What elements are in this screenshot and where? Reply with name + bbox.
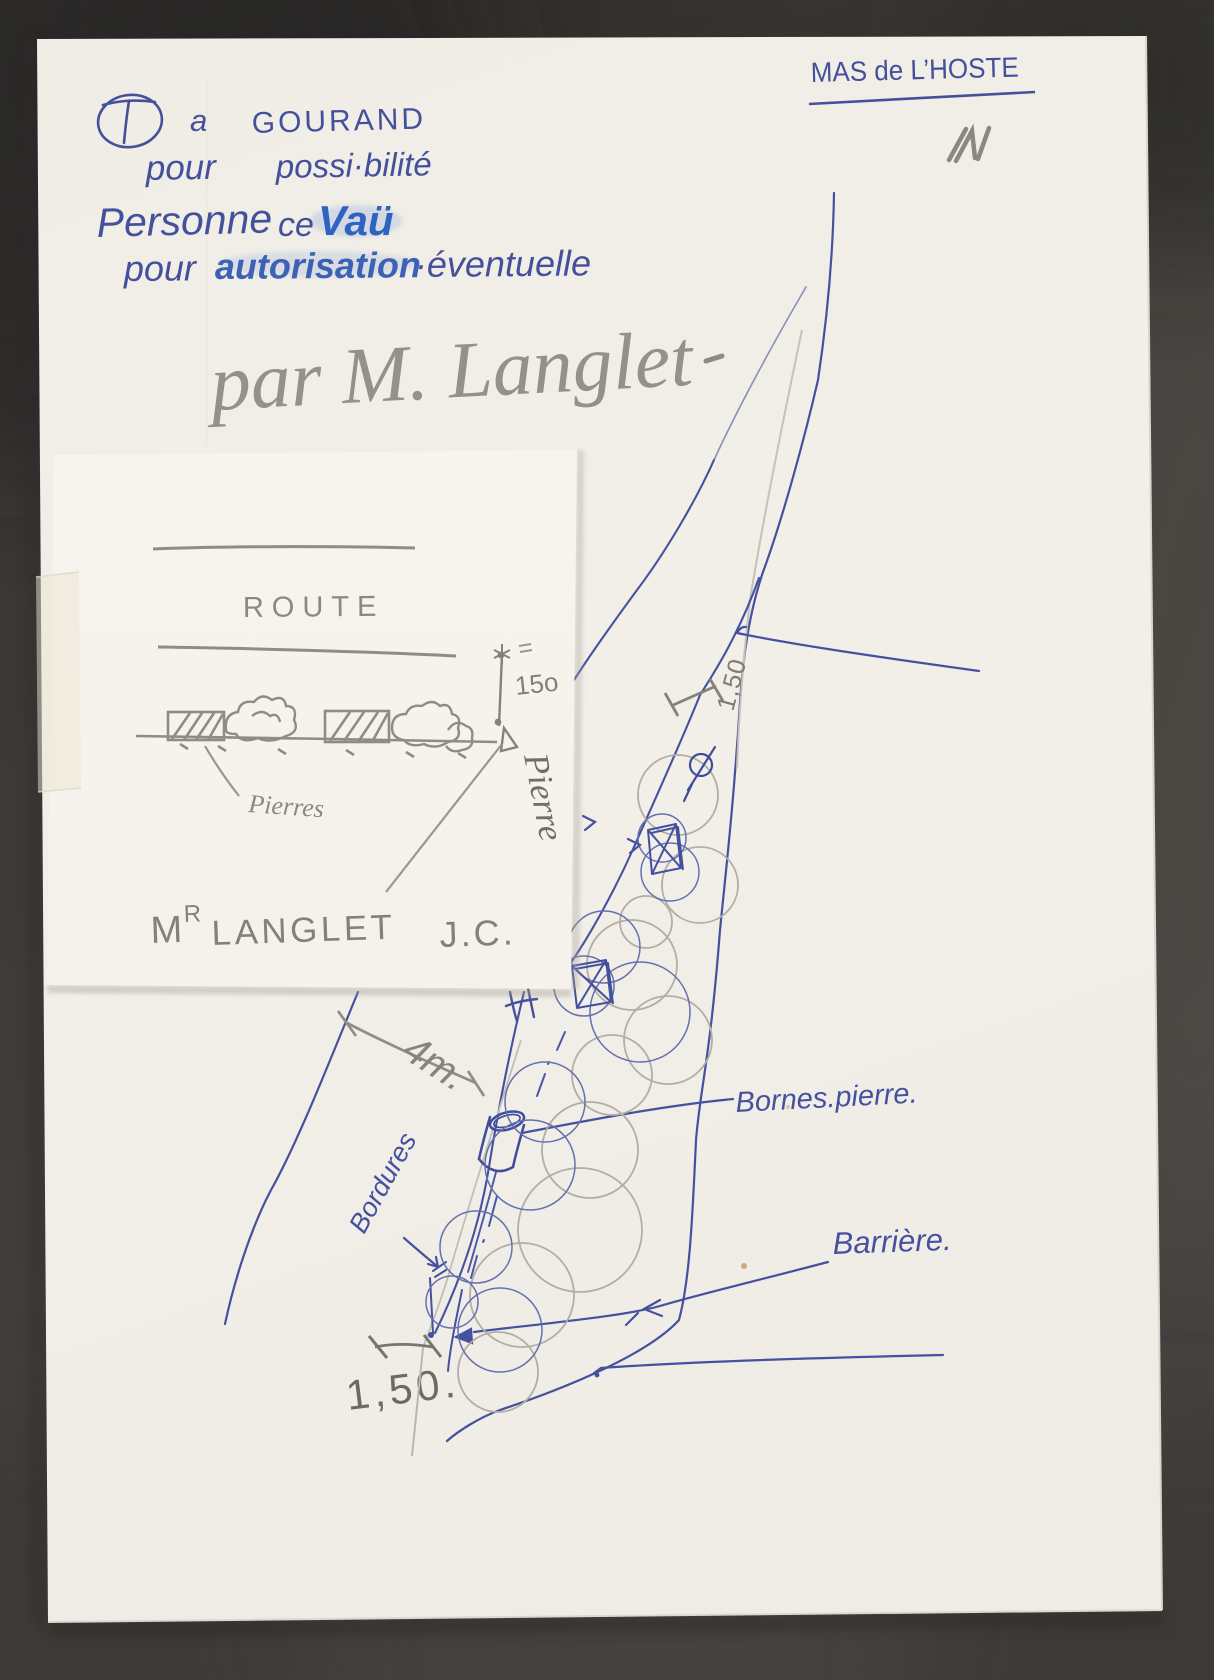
svg-text:GOURAND: GOURAND: [251, 102, 426, 140]
svg-text:ce: ce: [278, 206, 314, 244]
svg-text:Personne: Personne: [96, 195, 273, 246]
svg-text:R: R: [183, 900, 201, 928]
svg-text:Vaü: Vaü: [318, 197, 393, 244]
svg-text:Barrière.: Barrière.: [832, 1222, 952, 1261]
svg-text:·éventuelle: ·éventuelle: [415, 242, 591, 285]
svg-text:Pierres: Pierres: [247, 789, 325, 823]
svg-text:LANGLET: LANGLET: [211, 908, 396, 953]
svg-text:J.C.: J.C.: [439, 911, 516, 955]
svg-text:M: M: [150, 909, 183, 952]
svg-text:MAS de L’HOSTE: MAS de L’HOSTE: [810, 52, 1019, 88]
svg-text:pour: pour: [123, 247, 198, 289]
svg-text:pour: pour: [144, 148, 217, 188]
svg-text:a: a: [190, 103, 207, 138]
svg-text:ROUTE: ROUTE: [243, 591, 385, 624]
svg-text:autorisation: autorisation: [215, 244, 421, 287]
svg-text:possi·bilité: possi·bilité: [274, 145, 432, 185]
svg-text:15o: 15o: [513, 667, 559, 701]
